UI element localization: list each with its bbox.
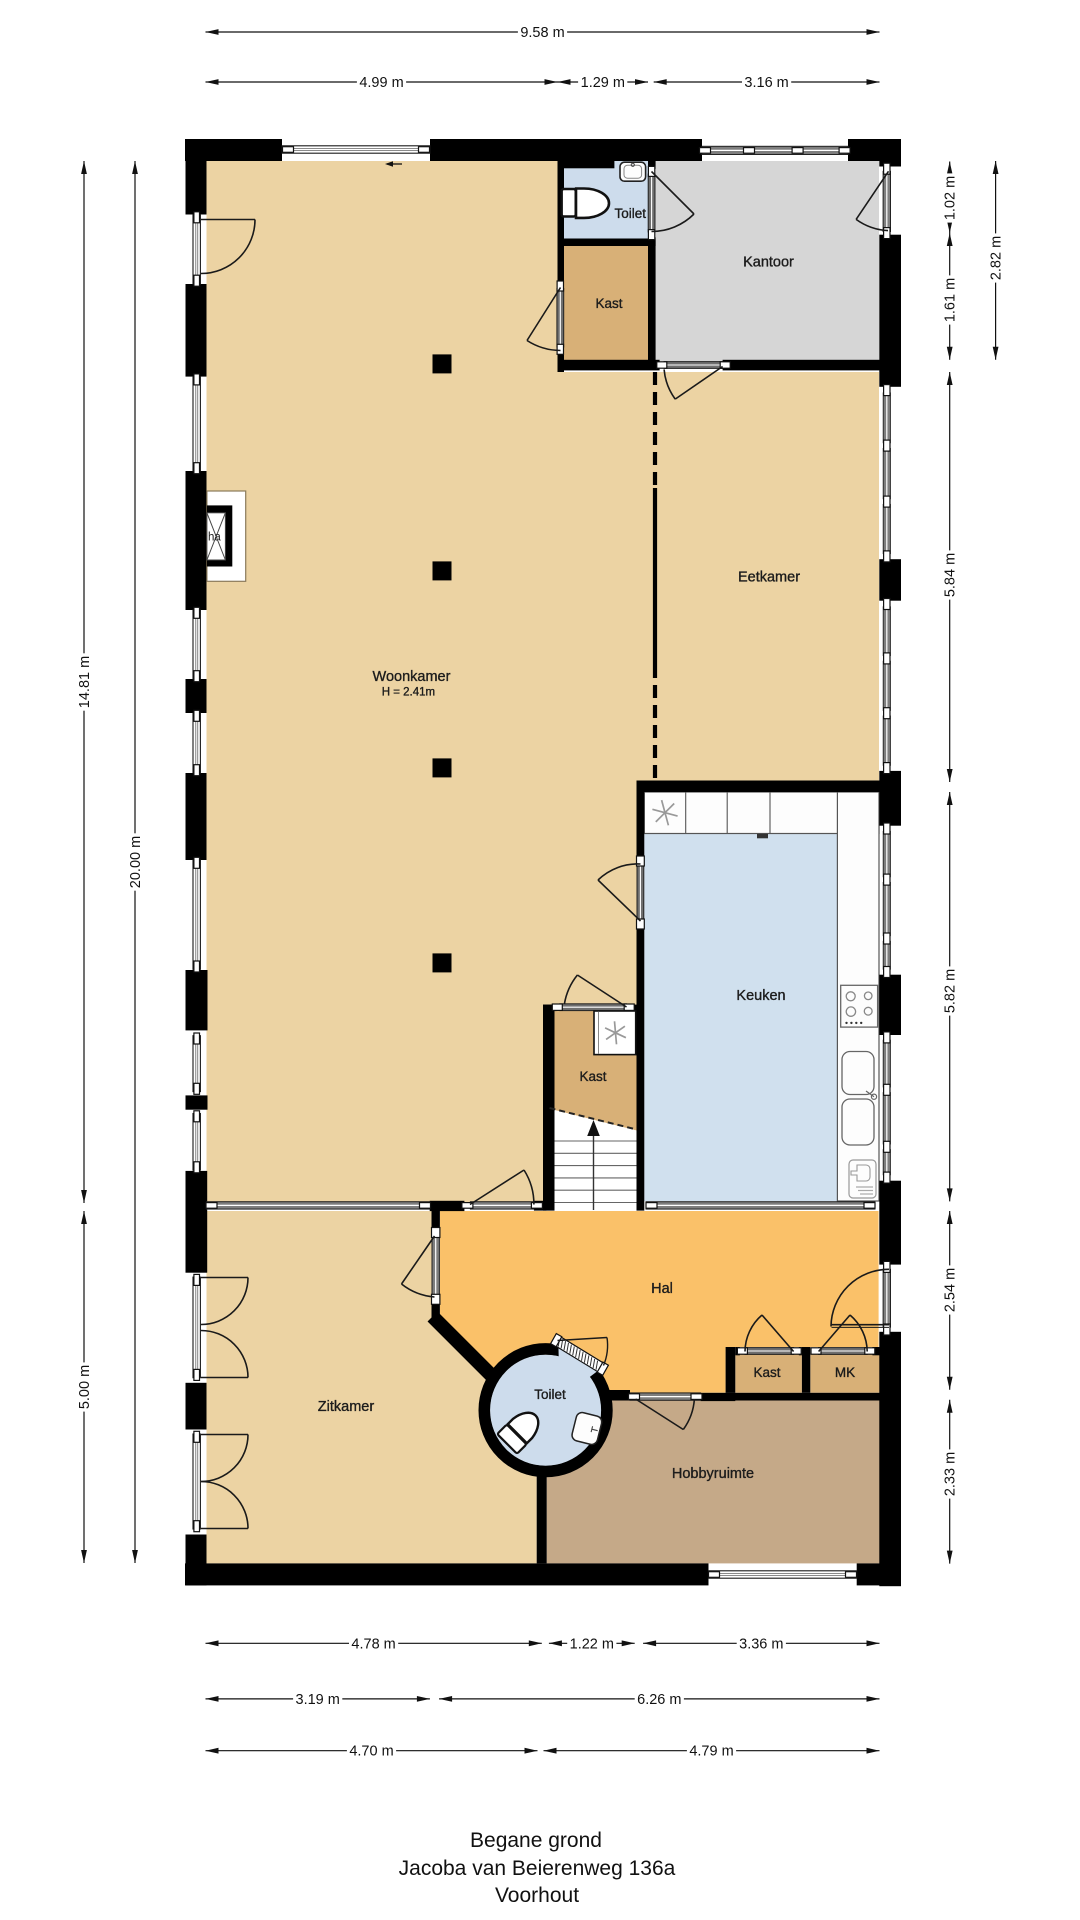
svg-text:2.33 m: 2.33 m <box>943 1452 959 1496</box>
svg-text:2.54 m: 2.54 m <box>943 1268 959 1312</box>
svg-text:9.58 m: 9.58 m <box>520 25 564 41</box>
svg-text:Kantoor: Kantoor <box>743 255 794 271</box>
svg-text:Eetkamer: Eetkamer <box>738 570 800 586</box>
svg-text:1.22 m: 1.22 m <box>570 1636 614 1652</box>
svg-text:Jacoba van Beierenweg 136a: Jacoba van Beierenweg 136a <box>399 1857 676 1880</box>
svg-text:1.61 m: 1.61 m <box>943 278 959 322</box>
svg-text:Toilet: Toilet <box>534 1387 566 1402</box>
svg-text:5.84 m: 5.84 m <box>943 553 959 597</box>
svg-text:Hobbyruimte: Hobbyruimte <box>672 1466 754 1482</box>
svg-text:Woonkamer: Woonkamer <box>373 669 451 685</box>
svg-text:Kast: Kast <box>579 1069 606 1084</box>
svg-text:Zitkamer: Zitkamer <box>318 1399 375 1415</box>
svg-text:20.00 m: 20.00 m <box>128 836 144 888</box>
svg-text:MK: MK <box>835 1365 855 1380</box>
svg-text:Kast: Kast <box>595 296 622 311</box>
svg-text:Kast: Kast <box>753 1365 780 1380</box>
svg-text:4.78 m: 4.78 m <box>351 1636 395 1652</box>
svg-text:3.36 m: 3.36 m <box>739 1636 783 1652</box>
svg-text:1.02 m: 1.02 m <box>943 176 959 220</box>
svg-text:5.00 m: 5.00 m <box>77 1365 93 1409</box>
svg-text:Keuken: Keuken <box>736 988 785 1004</box>
svg-text:Voorhout: Voorhout <box>495 1884 579 1907</box>
svg-text:4.70 m: 4.70 m <box>349 1744 393 1760</box>
svg-text:Hal: Hal <box>651 1281 673 1297</box>
svg-text:2.82 m: 2.82 m <box>989 236 1005 280</box>
svg-text:4.99 m: 4.99 m <box>359 75 403 91</box>
svg-text:H = 2.41m: H = 2.41m <box>382 687 435 699</box>
svg-text:4.79 m: 4.79 m <box>689 1744 733 1760</box>
svg-text:5.82 m: 5.82 m <box>943 969 959 1013</box>
svg-text:3.19 m: 3.19 m <box>296 1692 340 1708</box>
svg-text:Toilet: Toilet <box>615 206 647 221</box>
svg-text:ha: ha <box>208 532 221 544</box>
svg-text:6.26 m: 6.26 m <box>637 1692 681 1708</box>
svg-text:1.29 m: 1.29 m <box>581 75 625 91</box>
svg-text:Begane grond: Begane grond <box>470 1829 602 1852</box>
svg-text:3.16 m: 3.16 m <box>744 75 788 91</box>
svg-text:14.81 m: 14.81 m <box>77 656 93 708</box>
